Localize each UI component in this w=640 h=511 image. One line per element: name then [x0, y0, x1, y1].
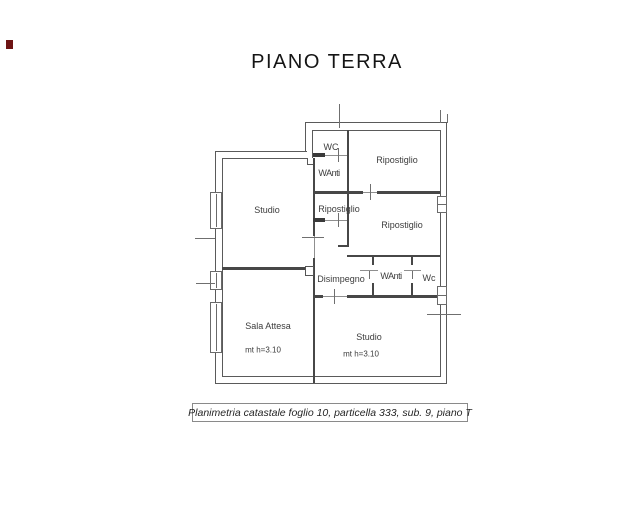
door-threshold-line [325, 155, 347, 156]
height-note-sala-attesa: mt h=3.10 [245, 346, 281, 355]
room-label-disimpegno: Disimpegno [317, 274, 365, 284]
room-label-studio-upper: Studio [254, 205, 280, 215]
wall-segment [377, 191, 440, 194]
wall-segment [313, 218, 325, 222]
cadastral-caption-box: Planimetria catastale foglio 10, partice… [192, 403, 468, 422]
room-label-studio-lower: Studio [356, 332, 382, 342]
door-tick [369, 271, 370, 279]
survey-tick [427, 314, 461, 315]
wall-segment [338, 245, 348, 247]
wall-segment [222, 376, 441, 377]
wall-segment [312, 130, 441, 131]
window [437, 295, 447, 305]
door-jamb [305, 266, 314, 276]
window [210, 271, 222, 290]
wall-segment [313, 191, 363, 194]
door-threshold-line [325, 220, 347, 221]
door-tick [334, 289, 335, 304]
room-label-ripostiglio-mid: Ripostiglio [318, 204, 360, 214]
door-threshold-line [323, 296, 347, 297]
wall-segment [411, 257, 413, 265]
page-title: PIANO TERRA [251, 51, 403, 74]
wall-segment [315, 295, 323, 298]
room-label-wc-top: WC [324, 142, 339, 152]
floor-plan-page: PIANO TERRA [0, 0, 640, 511]
window [210, 192, 222, 229]
door-tick [302, 237, 324, 238]
wall-segment [313, 153, 325, 157]
scan-artifact-mark [6, 40, 13, 49]
wall-segment [347, 255, 440, 257]
door-tick [338, 213, 339, 227]
height-note-studio-lower: mt h=3.10 [343, 350, 379, 359]
wall-segment [215, 151, 307, 152]
survey-tick [440, 110, 441, 123]
wall-segment [372, 257, 374, 265]
wall-segment [222, 267, 306, 270]
wall-segment [222, 158, 308, 159]
wall-segment [313, 158, 315, 236]
survey-tick [339, 104, 340, 128]
window [437, 204, 447, 213]
room-label-sala-attesa: Sala Attesa [245, 321, 291, 331]
door-threshold-line [314, 236, 315, 258]
survey-tick [195, 238, 215, 239]
wall-segment [305, 122, 447, 123]
wall-segment [313, 258, 315, 383]
door-tick [370, 184, 371, 200]
room-label-anti-mid: WAnti [380, 271, 401, 281]
room-label-wc-mid: Wc [423, 273, 436, 283]
wall-segment [305, 122, 306, 152]
survey-tick [196, 283, 215, 284]
wall-segment [440, 130, 441, 377]
survey-tick [447, 114, 448, 123]
window [210, 302, 222, 353]
room-label-ripostiglio-right: Ripostiglio [381, 220, 423, 230]
wall-segment [446, 122, 447, 384]
room-label-anti-top: WAnti [318, 168, 339, 178]
wall-segment [215, 383, 447, 384]
wall-segment [347, 295, 440, 298]
room-label-ripostiglio-top-right: Ripostiglio [376, 155, 418, 165]
door-tick [412, 271, 413, 279]
wall-segment [347, 130, 349, 247]
cadastral-caption-text: Planimetria catastale foglio 10, partice… [188, 407, 472, 419]
